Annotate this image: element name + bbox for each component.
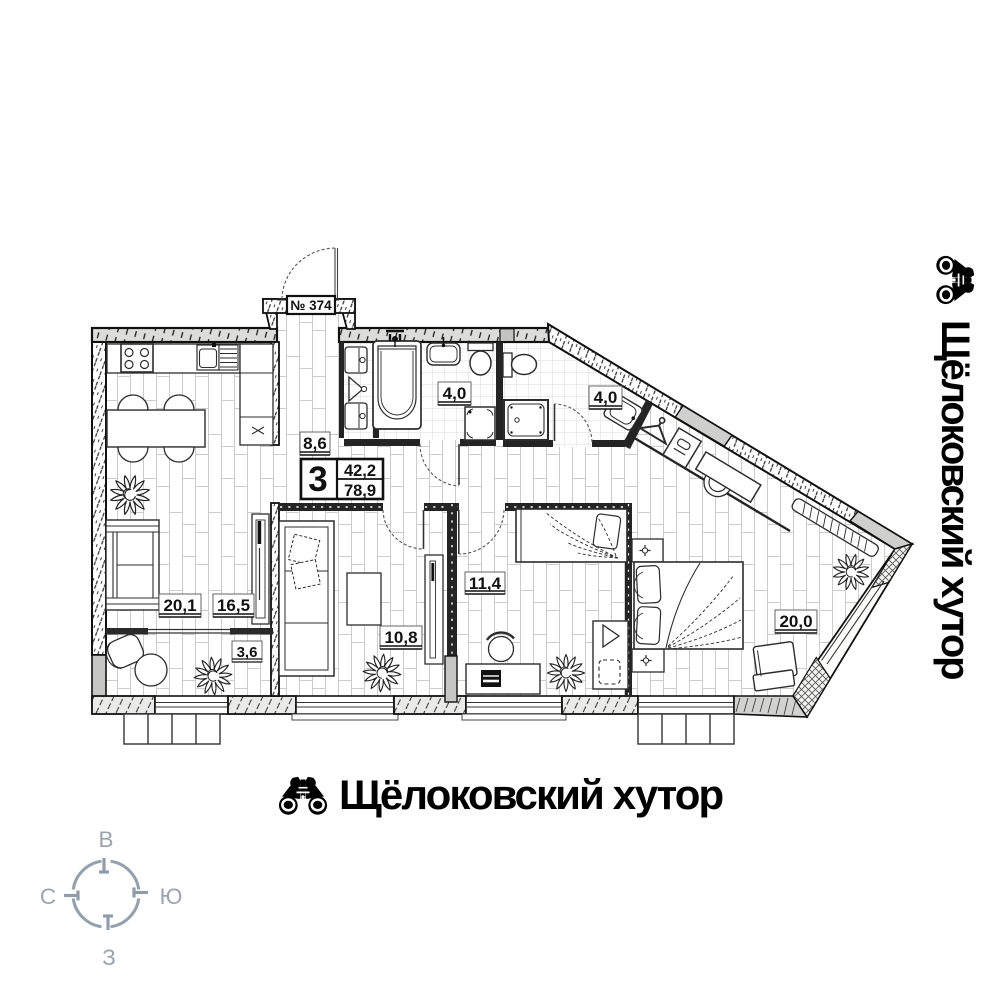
svg-text:11,4: 11,4 — [469, 574, 502, 593]
svg-text:В: В — [98, 827, 113, 852]
svg-text:С: С — [40, 884, 56, 909]
svg-text:4,0: 4,0 — [443, 384, 467, 403]
svg-text:42,2: 42,2 — [344, 462, 376, 480]
svg-text:20,1: 20,1 — [163, 596, 196, 615]
svg-text:8,6: 8,6 — [303, 434, 327, 453]
svg-text:Щёлоковский хутор: Щёлоковский хутор — [339, 771, 723, 818]
svg-text:20,0: 20,0 — [779, 612, 812, 631]
svg-text:4,0: 4,0 — [594, 388, 618, 407]
svg-text:Ю: Ю — [160, 884, 183, 909]
svg-text:78,9: 78,9 — [344, 482, 376, 500]
svg-text:З: З — [102, 945, 116, 970]
svg-text:Щёлоковский хутор: Щёлоковский хутор — [933, 320, 977, 679]
svg-text:3: 3 — [308, 460, 327, 499]
svg-text:10,8: 10,8 — [384, 628, 417, 647]
svg-text:16,5: 16,5 — [217, 596, 250, 615]
